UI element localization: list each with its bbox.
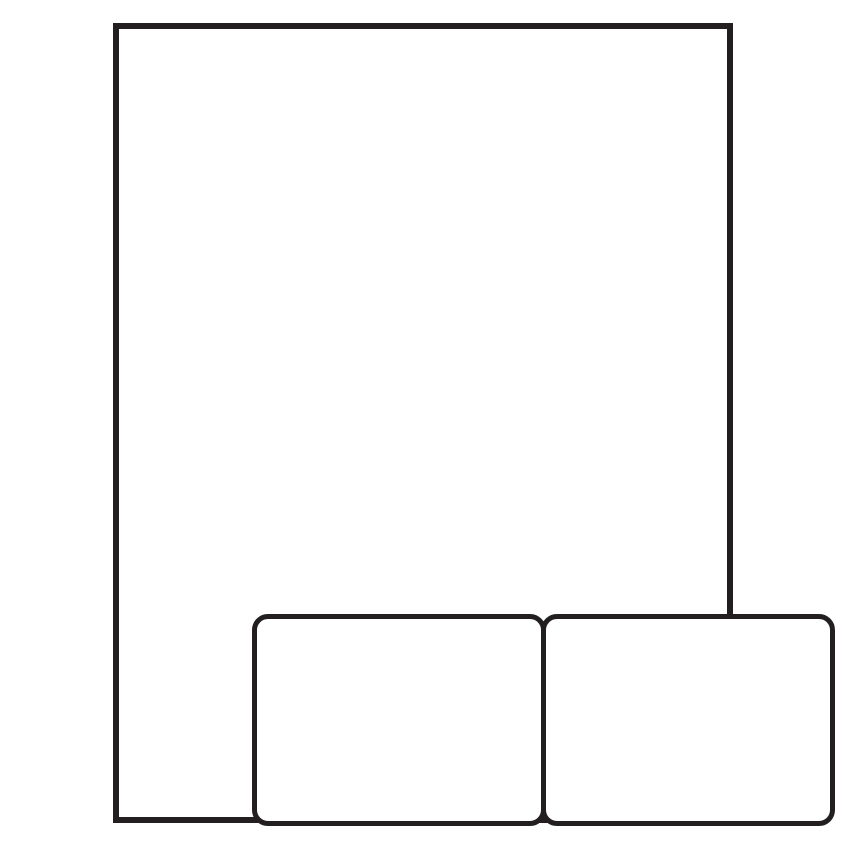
label-bottom-right [541, 614, 835, 826]
sheet-outline [113, 23, 733, 823]
artboard [0, 0, 850, 850]
label-bottom-left [252, 614, 546, 826]
